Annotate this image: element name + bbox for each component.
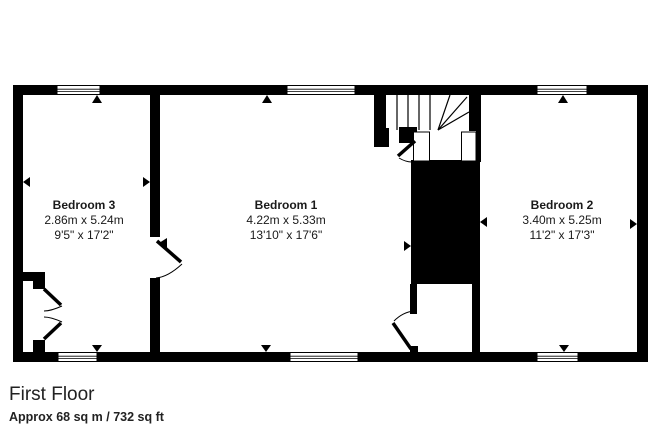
room-label-bedroom-1: Bedroom 1 4.22m x 5.33m 13'10" x 17'6" — [246, 198, 325, 243]
wall-segment — [150, 278, 160, 354]
closet-double-doors — [44, 289, 62, 339]
arrow-left-bedroom3 — [23, 177, 30, 187]
room-label-bedroom-2: Bedroom 2 3.40m x 5.25m 11'2" x 17'3" — [522, 198, 601, 243]
floor-plan-page: Bedroom 3 2.86m x 5.24m 9'5" x 17'2" Bed… — [0, 0, 650, 433]
room-size-metric: 3.40m x 5.25m — [522, 213, 601, 228]
window-bedroom3-top — [57, 86, 100, 95]
floor-title: First Floor — [9, 384, 164, 406]
room-size-imperial: 11'2" x 17'3" — [522, 228, 601, 243]
window-bedroom2-top — [537, 86, 587, 95]
wall-left — [13, 85, 23, 362]
closet-wall-jamb — [33, 281, 45, 289]
staircase — [397, 95, 469, 130]
door-cupboard — [393, 311, 414, 349]
wall-segment — [476, 128, 481, 162]
arrow-right-bedroom1 — [404, 241, 411, 251]
doorway-panels — [414, 132, 477, 161]
room-name: Bedroom 3 — [44, 198, 123, 213]
door-panel-landing-right — [462, 132, 477, 161]
window-bedroom1-bottom — [290, 353, 358, 362]
stair-winder — [438, 97, 467, 130]
wall-segment — [472, 284, 480, 354]
wall-segment — [150, 95, 160, 237]
closet-wall-top — [23, 272, 45, 281]
room-size-imperial: 9'5" x 17'2" — [44, 228, 123, 243]
stair-wall-right — [469, 95, 481, 131]
room-name: Bedroom 1 — [246, 198, 325, 213]
room-size-imperial: 13'10" x 17'6" — [246, 228, 325, 243]
arrow-up-bedroom3 — [92, 95, 102, 103]
wall-segment — [410, 284, 417, 314]
arrow-left-bedroom2 — [480, 217, 487, 227]
plan-footer: First Floor Approx 68 sq m / 732 sq ft — [9, 384, 164, 426]
stair-wall-corner — [374, 128, 389, 147]
door-bedroom3 — [156, 241, 182, 278]
room-label-bedroom-3: Bedroom 3 2.86m x 5.24m 9'5" x 17'2" — [44, 198, 123, 243]
window-bedroom1-top — [287, 86, 355, 95]
window-bedroom3-bottom — [58, 353, 97, 362]
chimney-breast — [411, 160, 480, 284]
arrow-up-bedroom1 — [262, 95, 272, 103]
arrow-down-bedroom2 — [559, 345, 569, 352]
closet-wall-bottom — [33, 340, 45, 353]
door-panel-landing-left — [414, 132, 430, 161]
room-size-metric: 2.86m x 5.24m — [44, 213, 123, 228]
room-size-metric: 4.22m x 5.33m — [246, 213, 325, 228]
arrow-up-bedroom2 — [558, 95, 568, 103]
wall-right — [637, 85, 648, 362]
arrow-down-bedroom1 — [261, 345, 271, 352]
arrow-right-bedroom2 — [630, 219, 637, 229]
arrow-down-bedroom3 — [92, 345, 102, 352]
arrow-right-bedroom3 — [143, 177, 150, 187]
floor-area: Approx 68 sq m / 732 sq ft — [9, 408, 164, 426]
stair-wall-left — [374, 95, 386, 131]
room-name: Bedroom 2 — [522, 198, 601, 213]
window-bedroom2-bottom — [537, 353, 578, 362]
doors — [44, 141, 418, 349]
